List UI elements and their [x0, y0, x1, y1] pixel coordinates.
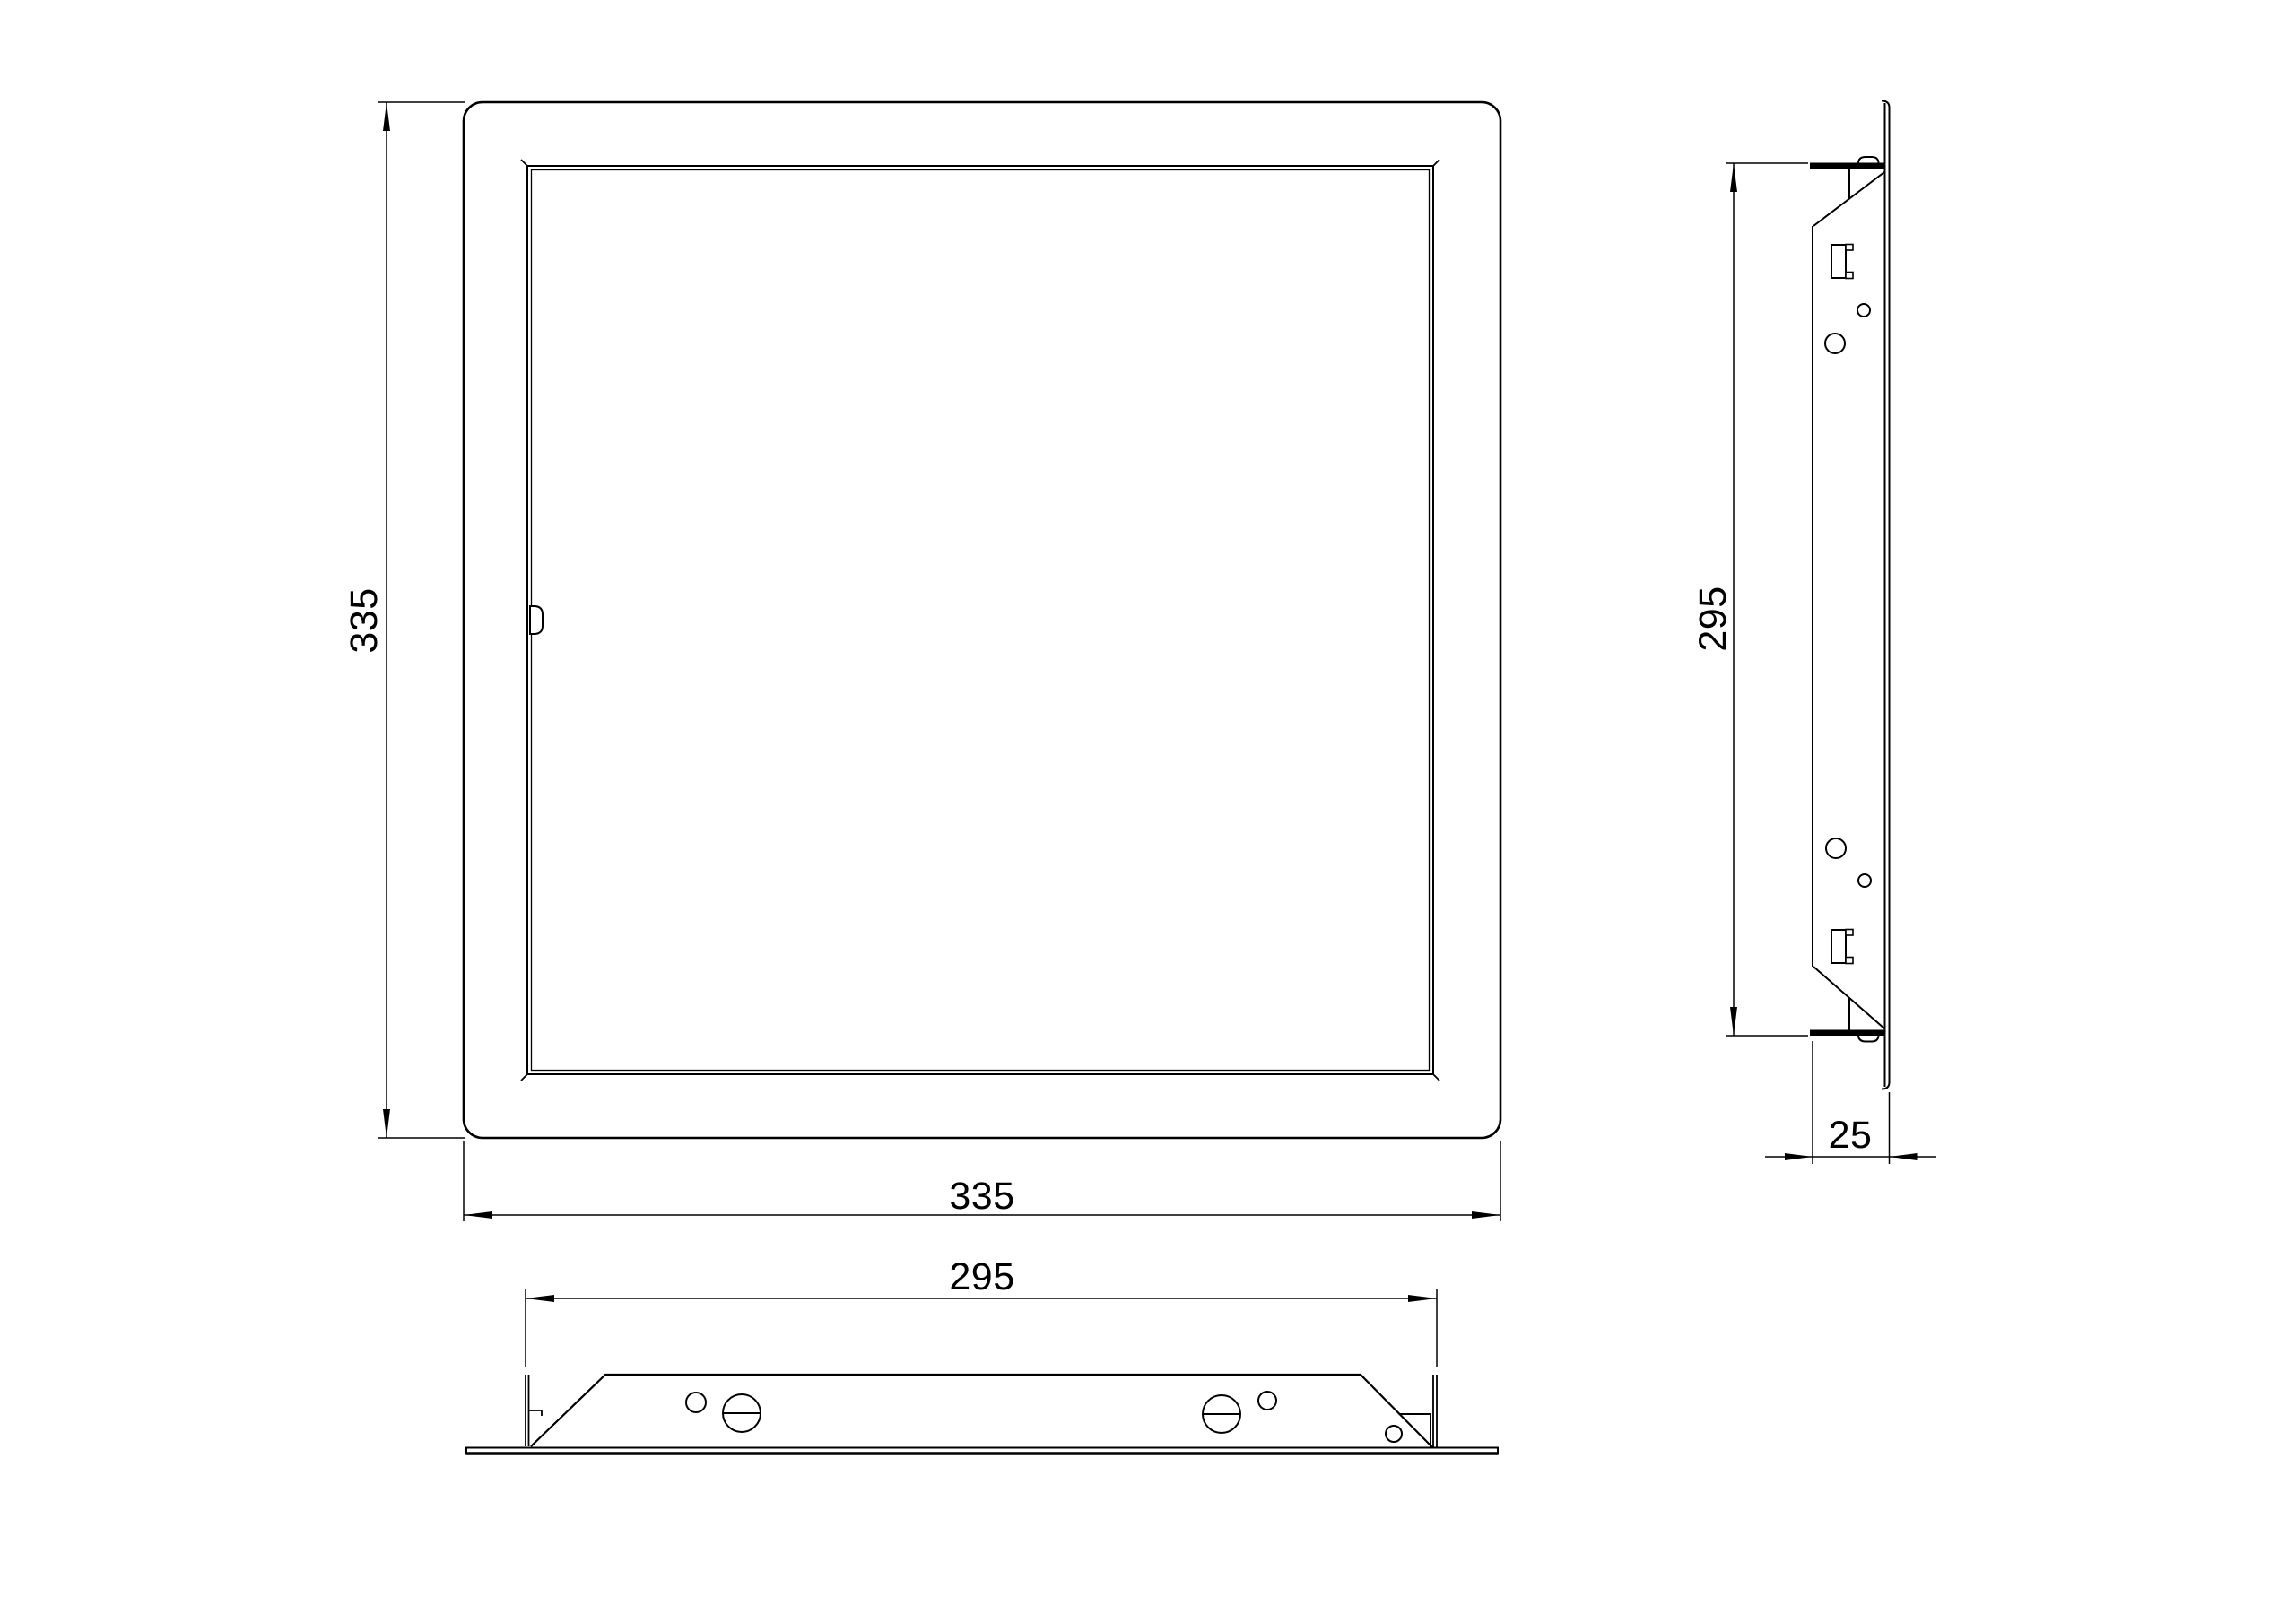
clip-tab: [1846, 273, 1853, 279]
dim-side-height-label: 295: [1692, 586, 1735, 651]
dim-front-width-label: 335: [949, 1175, 1014, 1218]
dim-front-width: 335: [464, 1141, 1500, 1221]
arrowhead-down: [1730, 1007, 1737, 1036]
hole-small-bottom: [1858, 874, 1871, 887]
arrowhead-right: [1472, 1211, 1500, 1219]
slotted-screw-left: [723, 1394, 761, 1432]
drawing-sheet: 335 335: [0, 0, 2296, 1623]
dim-side-depth-label: 25: [1829, 1114, 1873, 1157]
door-corner-tick-top-right: [1433, 160, 1439, 166]
hole-large-bottom: [1826, 838, 1846, 858]
arrowhead-inward-right: [1890, 1153, 1918, 1160]
technical-drawing: 335 335: [0, 0, 2296, 1623]
door-corner-tick-top-left: [521, 160, 527, 166]
hole-left: [686, 1393, 706, 1412]
door-corner-tick-bottom-left: [521, 1074, 527, 1081]
arrowhead-left: [526, 1295, 554, 1302]
dim-front-height: 335: [343, 102, 465, 1138]
arrowhead-inward-left: [1785, 1153, 1813, 1160]
liner-left-step: [528, 1410, 542, 1416]
front-door-outline: [527, 166, 1433, 1074]
clip-body: [1831, 930, 1846, 963]
screw-head-top: [1858, 157, 1879, 163]
bottom-view: [466, 1375, 1498, 1454]
dim-bottom-width-label: 295: [949, 1255, 1014, 1298]
slotted-screw-right: [1203, 1395, 1240, 1433]
front-frame-outline: [464, 102, 1500, 1138]
liner-top-wall: [1810, 163, 1884, 169]
spring-clip-top: [1831, 245, 1853, 279]
hole-small-top: [1857, 304, 1870, 317]
arrowhead-left: [464, 1211, 492, 1219]
clip-tab: [1846, 245, 1853, 251]
clip-tab: [1846, 958, 1853, 964]
liner-bottom-wall: [1810, 1030, 1884, 1037]
hole-large-top: [1825, 334, 1845, 353]
clip-body: [1831, 245, 1846, 278]
door-latch: [530, 606, 543, 634]
dim-front-height-label: 335: [343, 587, 386, 653]
dim-bottom-width: 295: [526, 1255, 1437, 1367]
hole-right: [1258, 1392, 1276, 1410]
side-view: [1810, 101, 1890, 1089]
arrowhead-up: [1730, 163, 1737, 192]
clip-tab: [1846, 930, 1853, 936]
front-view: [464, 102, 1500, 1138]
dim-side-height: 295: [1692, 163, 1808, 1036]
door-corner-tick-bottom-right: [1433, 1074, 1439, 1081]
front-door-inner-edge: [532, 170, 1430, 1071]
liner-box-outline: [531, 1375, 1432, 1447]
arrowhead-right: [1408, 1295, 1437, 1302]
screw-head-bottom: [1858, 1036, 1879, 1042]
hole-right-corner: [1386, 1426, 1402, 1442]
spring-clip-bottom: [1831, 930, 1853, 964]
arrowhead-down: [383, 1109, 390, 1138]
dim-side-depth: 25: [1765, 1041, 1936, 1164]
arrowhead-up: [383, 102, 390, 131]
